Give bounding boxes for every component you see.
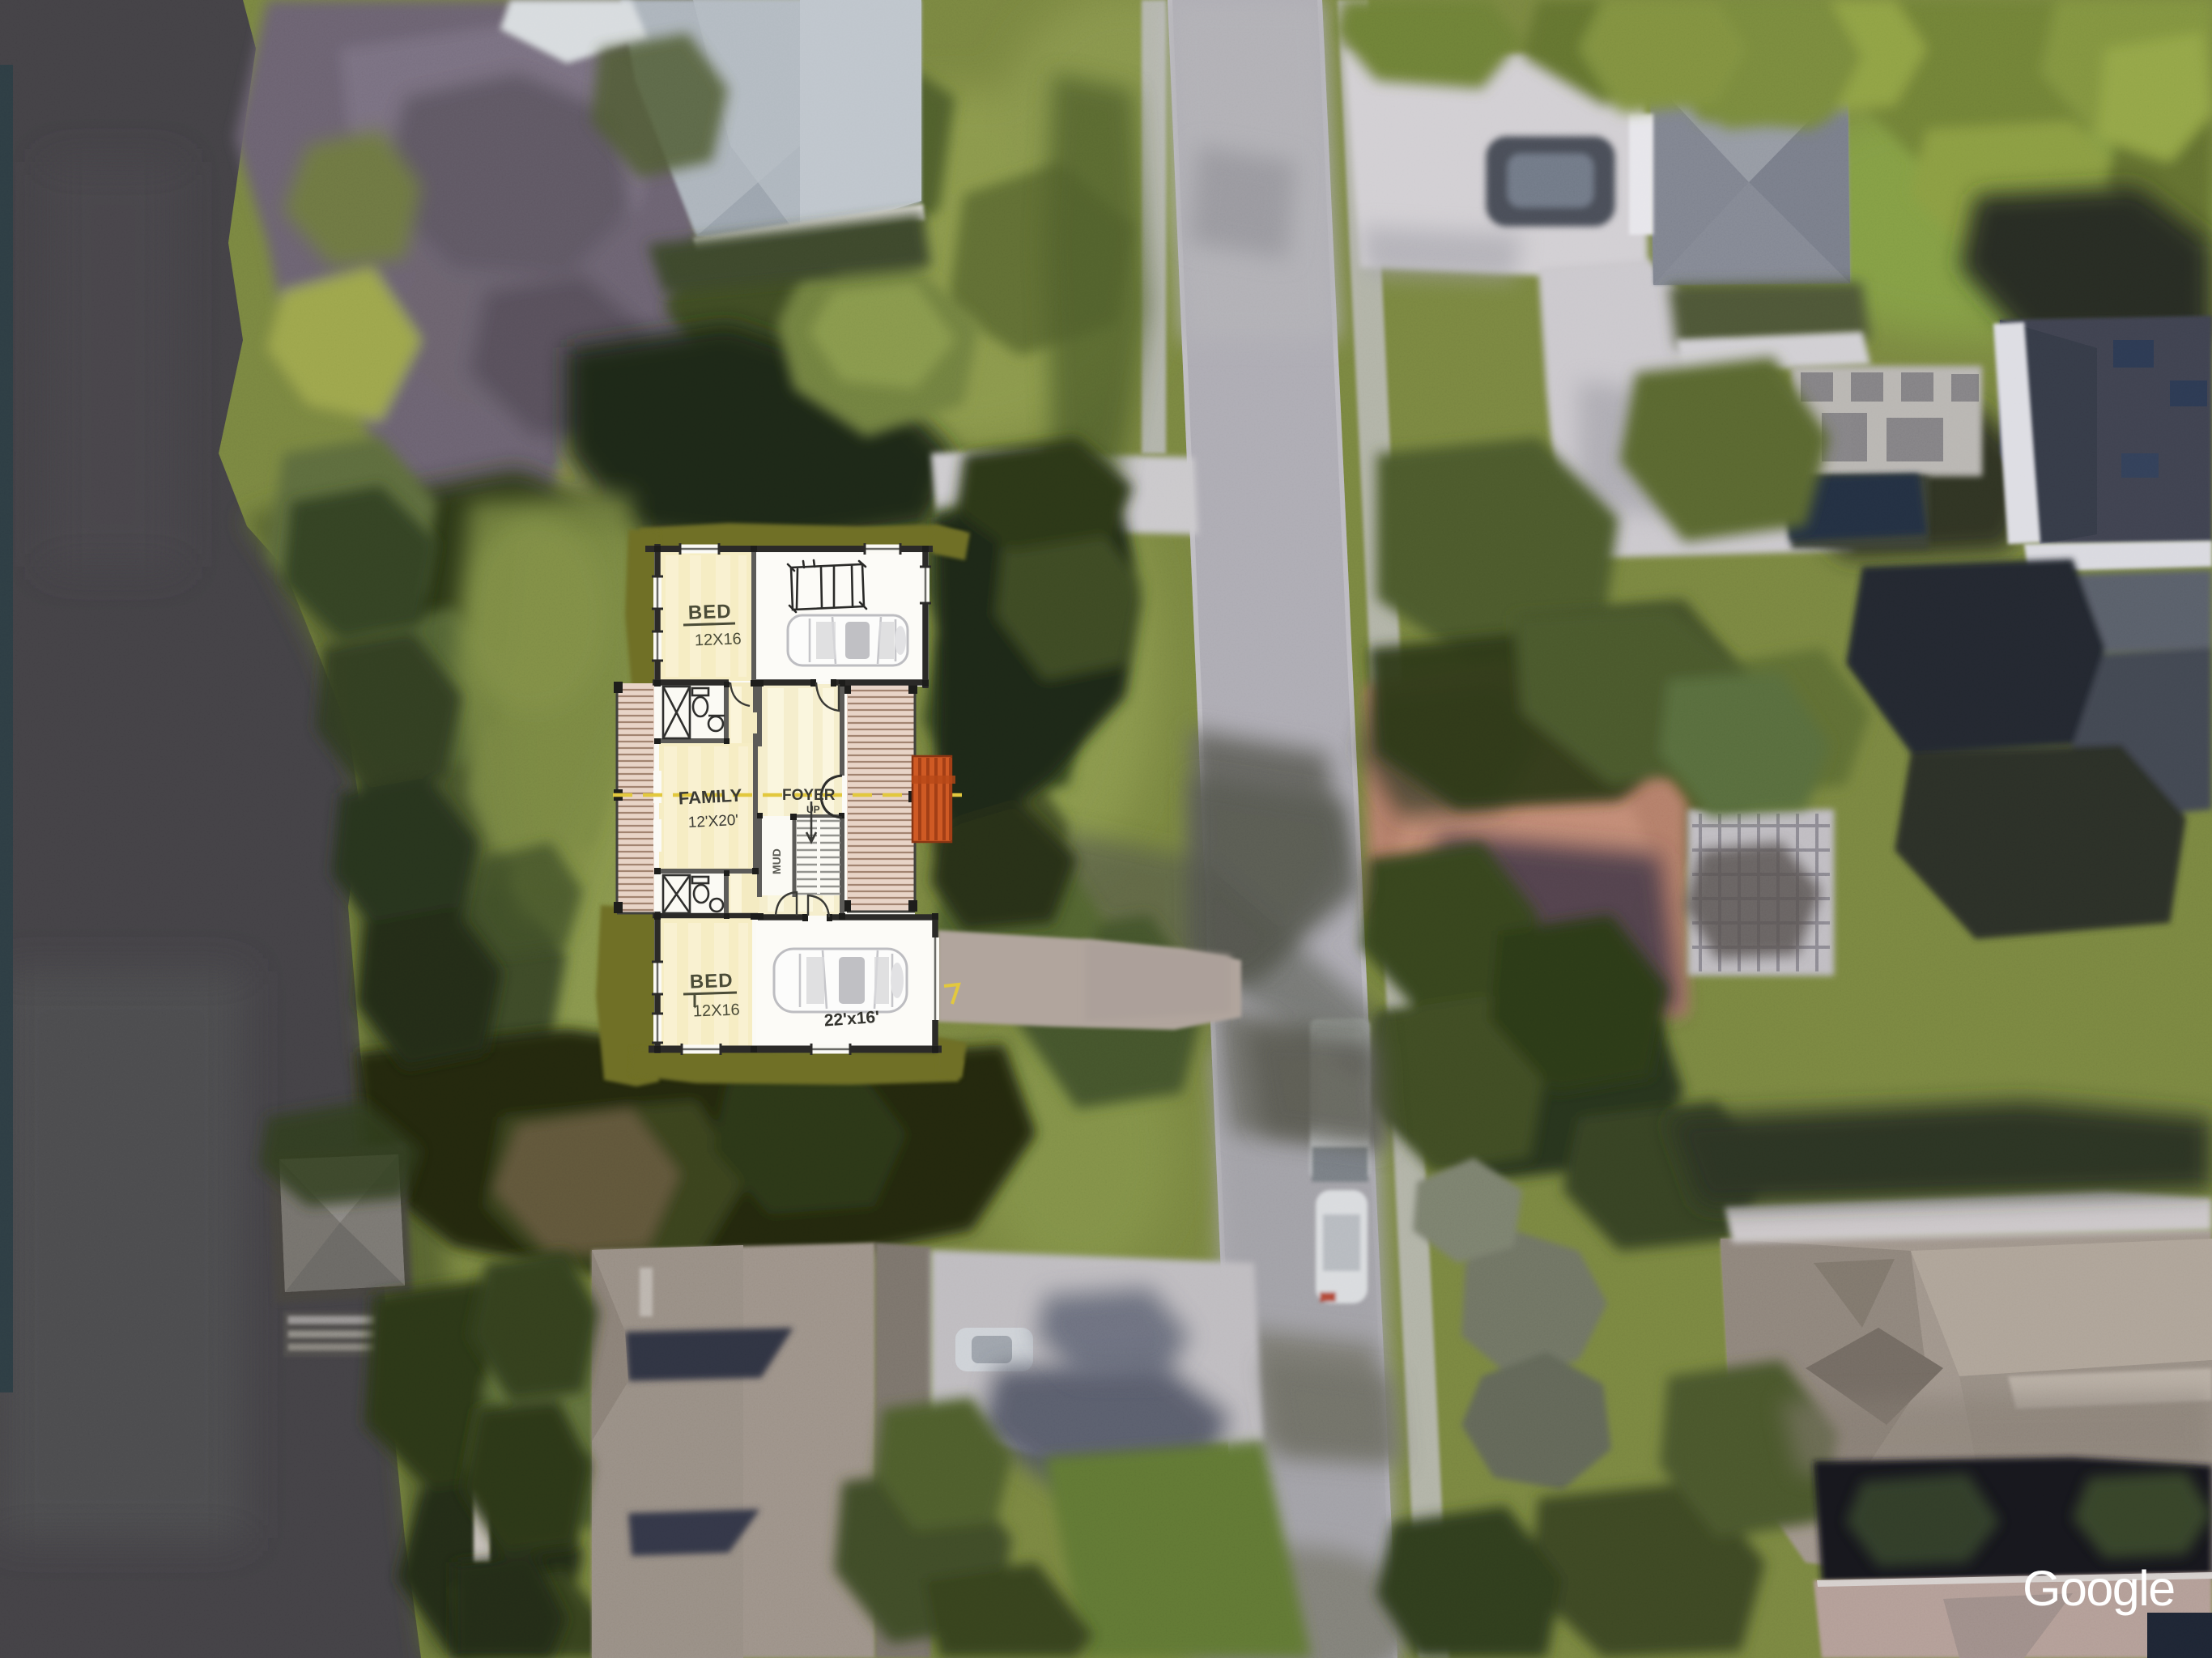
svg-text:FOYER: FOYER (782, 787, 836, 804)
svg-text:22'x16': 22'x16' (823, 1008, 880, 1031)
svg-text:FAMILY: FAMILY (678, 785, 742, 809)
svg-text:12'X20': 12'X20' (687, 812, 738, 831)
svg-text:MUD: MUD (770, 848, 783, 874)
svg-text:Google: Google (2023, 1561, 2175, 1616)
svg-text:BED: BED (689, 970, 734, 993)
svg-text:12X16: 12X16 (694, 630, 742, 649)
svg-text:12X16: 12X16 (693, 1001, 741, 1021)
svg-text:BED: BED (687, 601, 732, 624)
svg-text:UP: UP (806, 804, 820, 815)
